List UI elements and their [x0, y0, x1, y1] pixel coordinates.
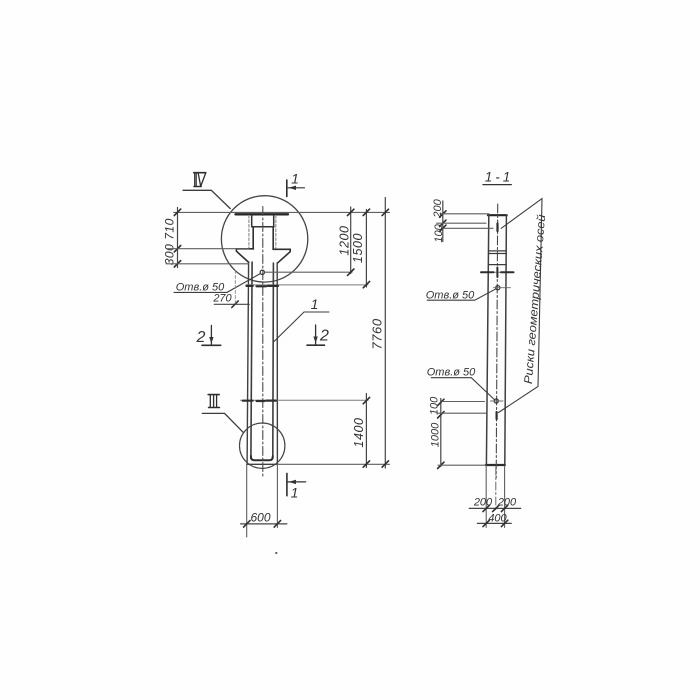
- svg-text:1-1: 1-1: [485, 170, 514, 185]
- svg-text:270: 270: [212, 293, 232, 305]
- svg-text:1400: 1400: [352, 417, 366, 447]
- svg-text:200: 200: [473, 497, 493, 509]
- svg-text:1000: 1000: [429, 422, 441, 447]
- svg-text:Риски геометрических осей: Риски геометрических осей: [523, 213, 548, 384]
- svg-text:2: 2: [196, 329, 206, 346]
- svg-text:2: 2: [319, 328, 329, 345]
- svg-text:100: 100: [429, 396, 441, 415]
- svg-text:1: 1: [291, 485, 299, 501]
- svg-text:7760: 7760: [370, 318, 385, 349]
- svg-text:1: 1: [291, 171, 299, 187]
- svg-text:200: 200: [432, 198, 444, 218]
- svg-text:300: 300: [163, 244, 177, 266]
- svg-text:100: 100: [433, 223, 445, 242]
- svg-text:1: 1: [311, 296, 319, 312]
- svg-text:1500: 1500: [351, 233, 365, 263]
- svg-text:400: 400: [488, 513, 507, 525]
- svg-text:1200: 1200: [338, 225, 352, 255]
- svg-text:200: 200: [497, 497, 517, 509]
- svg-text:600: 600: [250, 511, 270, 525]
- svg-text:Отв.ø 50: Отв.ø 50: [427, 367, 476, 379]
- svg-text:710: 710: [163, 218, 177, 240]
